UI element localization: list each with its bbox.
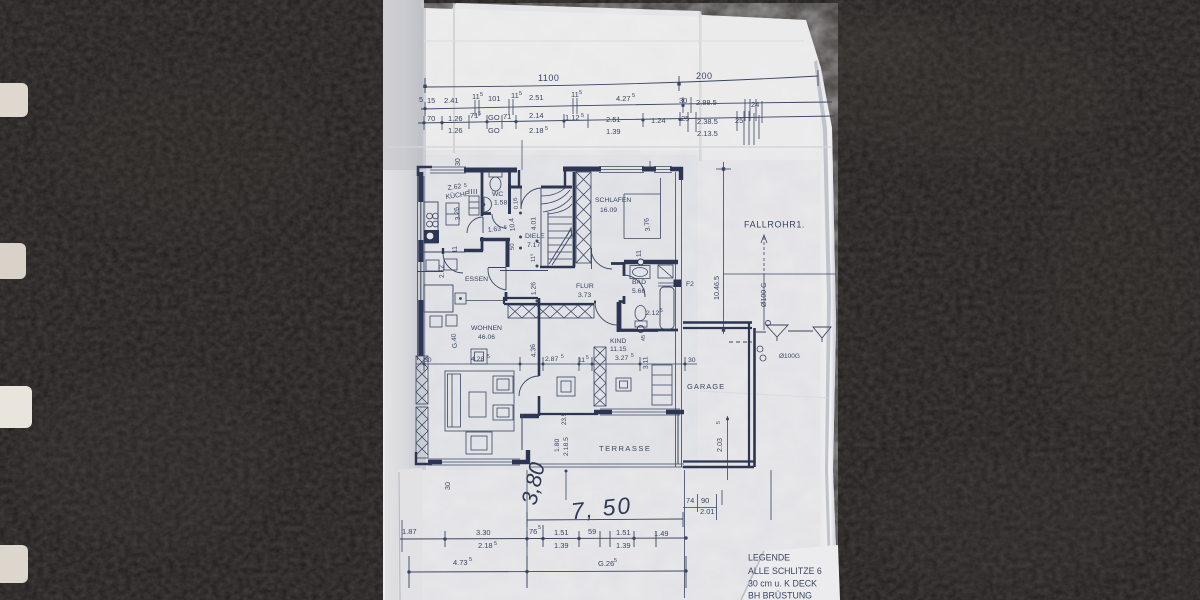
svg-text:71: 71	[503, 112, 511, 121]
svg-text:5: 5	[586, 355, 589, 361]
svg-text:FALLROHR1.: FALLROHR1.	[744, 220, 805, 230]
svg-text:23.5: 23.5	[561, 412, 568, 425]
svg-text:5.66: 5.66	[632, 288, 645, 295]
svg-text:F2: F2	[686, 281, 694, 288]
svg-text:11: 11	[452, 246, 459, 254]
svg-text:1.39: 1.39	[606, 127, 621, 136]
svg-text:90: 90	[701, 496, 709, 505]
svg-text:5: 5	[469, 557, 472, 563]
svg-text:2.18: 2.18	[478, 541, 493, 550]
svg-text:16.09: 16.09	[600, 207, 617, 214]
svg-text:4.73: 4.73	[453, 558, 468, 567]
svg-text:5: 5	[716, 421, 722, 424]
svg-text:5: 5	[545, 126, 548, 132]
svg-text:30: 30	[688, 357, 696, 364]
svg-text:Ø100 G: Ø100 G	[761, 282, 768, 307]
svg-text:Ø100G: Ø100G	[779, 353, 800, 360]
svg-text:2.12: 2.12	[646, 310, 659, 317]
svg-text:11: 11	[571, 90, 579, 99]
svg-text:76: 76	[529, 527, 537, 536]
svg-text:3.27: 3.27	[615, 355, 628, 362]
svg-text:11: 11	[472, 92, 480, 101]
svg-text:2.18: 2.18	[529, 126, 544, 135]
svg-text:1.51: 1.51	[616, 528, 631, 537]
svg-text:1.12: 1.12	[565, 113, 580, 122]
svg-text:SCHLAFEN: SCHLAFEN	[595, 197, 631, 204]
svg-text:30: 30	[455, 158, 462, 166]
svg-text:30 cm u. K DECK: 30 cm u. K DECK	[748, 579, 817, 589]
svg-text:TERRASSE: TERRASSE	[599, 444, 651, 453]
svg-text:5: 5	[631, 353, 634, 359]
svg-text:1.39: 1.39	[616, 541, 631, 550]
svg-text:4.28: 4.28	[471, 356, 484, 363]
svg-text:1.39: 1.39	[554, 541, 569, 550]
svg-text:1.63: 1.63	[487, 226, 501, 234]
svg-text:10.46.5: 10.46.5	[712, 276, 721, 300]
svg-text:7.17: 7.17	[527, 242, 540, 249]
svg-text:2.51: 2.51	[606, 115, 621, 124]
svg-text:KIND: KIND	[610, 338, 626, 345]
svg-text:50: 50	[510, 243, 516, 251]
svg-text:GO: GO	[488, 113, 500, 122]
svg-text:G.40: G.40	[451, 333, 459, 349]
svg-text:WC: WC	[492, 191, 503, 198]
svg-text:BAD: BAD	[632, 279, 646, 286]
svg-text:5: 5	[419, 95, 423, 104]
svg-text:2.01: 2.01	[700, 507, 715, 516]
svg-text:11.15: 11.15	[610, 346, 627, 353]
svg-text:74: 74	[686, 496, 694, 505]
svg-text:101: 101	[488, 94, 501, 103]
svg-text:30: 30	[443, 482, 452, 490]
svg-text:FLUR: FLUR	[576, 283, 594, 290]
svg-text:2.14: 2.14	[529, 111, 544, 120]
svg-text:46.06: 46.06	[478, 334, 495, 341]
svg-text:ALLE SCHLITZE 6: ALLE SCHLITZE 6	[748, 566, 822, 576]
svg-text:1.80: 1.80	[554, 439, 561, 452]
svg-text:5: 5	[504, 225, 507, 231]
svg-text:1100: 1100	[538, 73, 559, 83]
svg-text:2.18.5: 2.18.5	[563, 437, 570, 456]
svg-text:11: 11	[511, 91, 519, 100]
svg-text:15: 15	[427, 96, 435, 105]
svg-text:2.87: 2.87	[545, 356, 558, 363]
svg-text:3.73: 3.73	[578, 292, 591, 299]
svg-text:5: 5	[579, 90, 582, 96]
svg-text:4.36: 4.36	[530, 343, 538, 357]
svg-text:5: 5	[632, 93, 635, 99]
svg-text:11⁵: 11⁵	[530, 253, 537, 263]
svg-text:2.88.5: 2.88.5	[696, 98, 717, 107]
svg-text:1.26: 1.26	[448, 126, 463, 135]
svg-text:5: 5	[519, 91, 522, 97]
svg-text:5: 5	[478, 111, 481, 117]
svg-text:G.26: G.26	[598, 559, 614, 568]
svg-text:WOHNEN: WOHNEN	[471, 325, 502, 332]
svg-text:5: 5	[614, 558, 617, 564]
svg-text:2.51: 2.51	[529, 93, 544, 102]
svg-text:1.87: 1.87	[402, 527, 417, 536]
svg-text:70: 70	[427, 114, 435, 123]
svg-text:200: 200	[696, 71, 713, 81]
svg-text:59: 59	[588, 527, 596, 536]
svg-text:3.30: 3.30	[476, 528, 491, 537]
svg-text:5: 5	[660, 308, 663, 314]
svg-text:1.26: 1.26	[448, 114, 463, 123]
svg-text:0.16: 0.16	[513, 197, 520, 210]
svg-text:24: 24	[751, 100, 759, 109]
svg-text:5: 5	[487, 354, 490, 360]
svg-text:LEGENDE: LEGENDE	[748, 553, 790, 563]
svg-text:5: 5	[464, 183, 467, 189]
svg-text:1.26: 1.26	[530, 281, 538, 295]
svg-text:2.03: 2.03	[715, 438, 724, 452]
svg-text:5: 5	[538, 525, 541, 531]
svg-text:1.24: 1.24	[651, 116, 666, 125]
svg-text:3.11: 3.11	[642, 356, 650, 369]
svg-text:4.01: 4.01	[530, 216, 538, 230]
svg-text:DIELE: DIELE	[525, 233, 545, 240]
svg-text:45: 45	[641, 335, 647, 341]
svg-text:11: 11	[636, 250, 643, 258]
svg-text:5: 5	[480, 92, 483, 98]
svg-text:2.41: 2.41	[444, 96, 459, 105]
svg-text:25: 25	[735, 116, 743, 125]
svg-text:BH BRÜSTUNG: BH BRÜSTUNG	[748, 591, 812, 600]
svg-text:GARAGE: GARAGE	[687, 382, 725, 391]
svg-text:ESSEN: ESSEN	[465, 276, 488, 283]
svg-text:2.13.5: 2.13.5	[697, 129, 718, 138]
svg-text:5: 5	[561, 354, 564, 360]
svg-text:5: 5	[581, 113, 584, 119]
svg-text:2.38.5: 2.38.5	[697, 117, 718, 126]
svg-text:4.27: 4.27	[616, 94, 631, 103]
svg-text:1.58: 1.58	[494, 200, 507, 207]
svg-text:30: 30	[424, 357, 432, 364]
svg-text:GO: GO	[488, 126, 500, 135]
svg-text:5: 5	[494, 541, 497, 547]
svg-text:1.51: 1.51	[554, 528, 569, 537]
